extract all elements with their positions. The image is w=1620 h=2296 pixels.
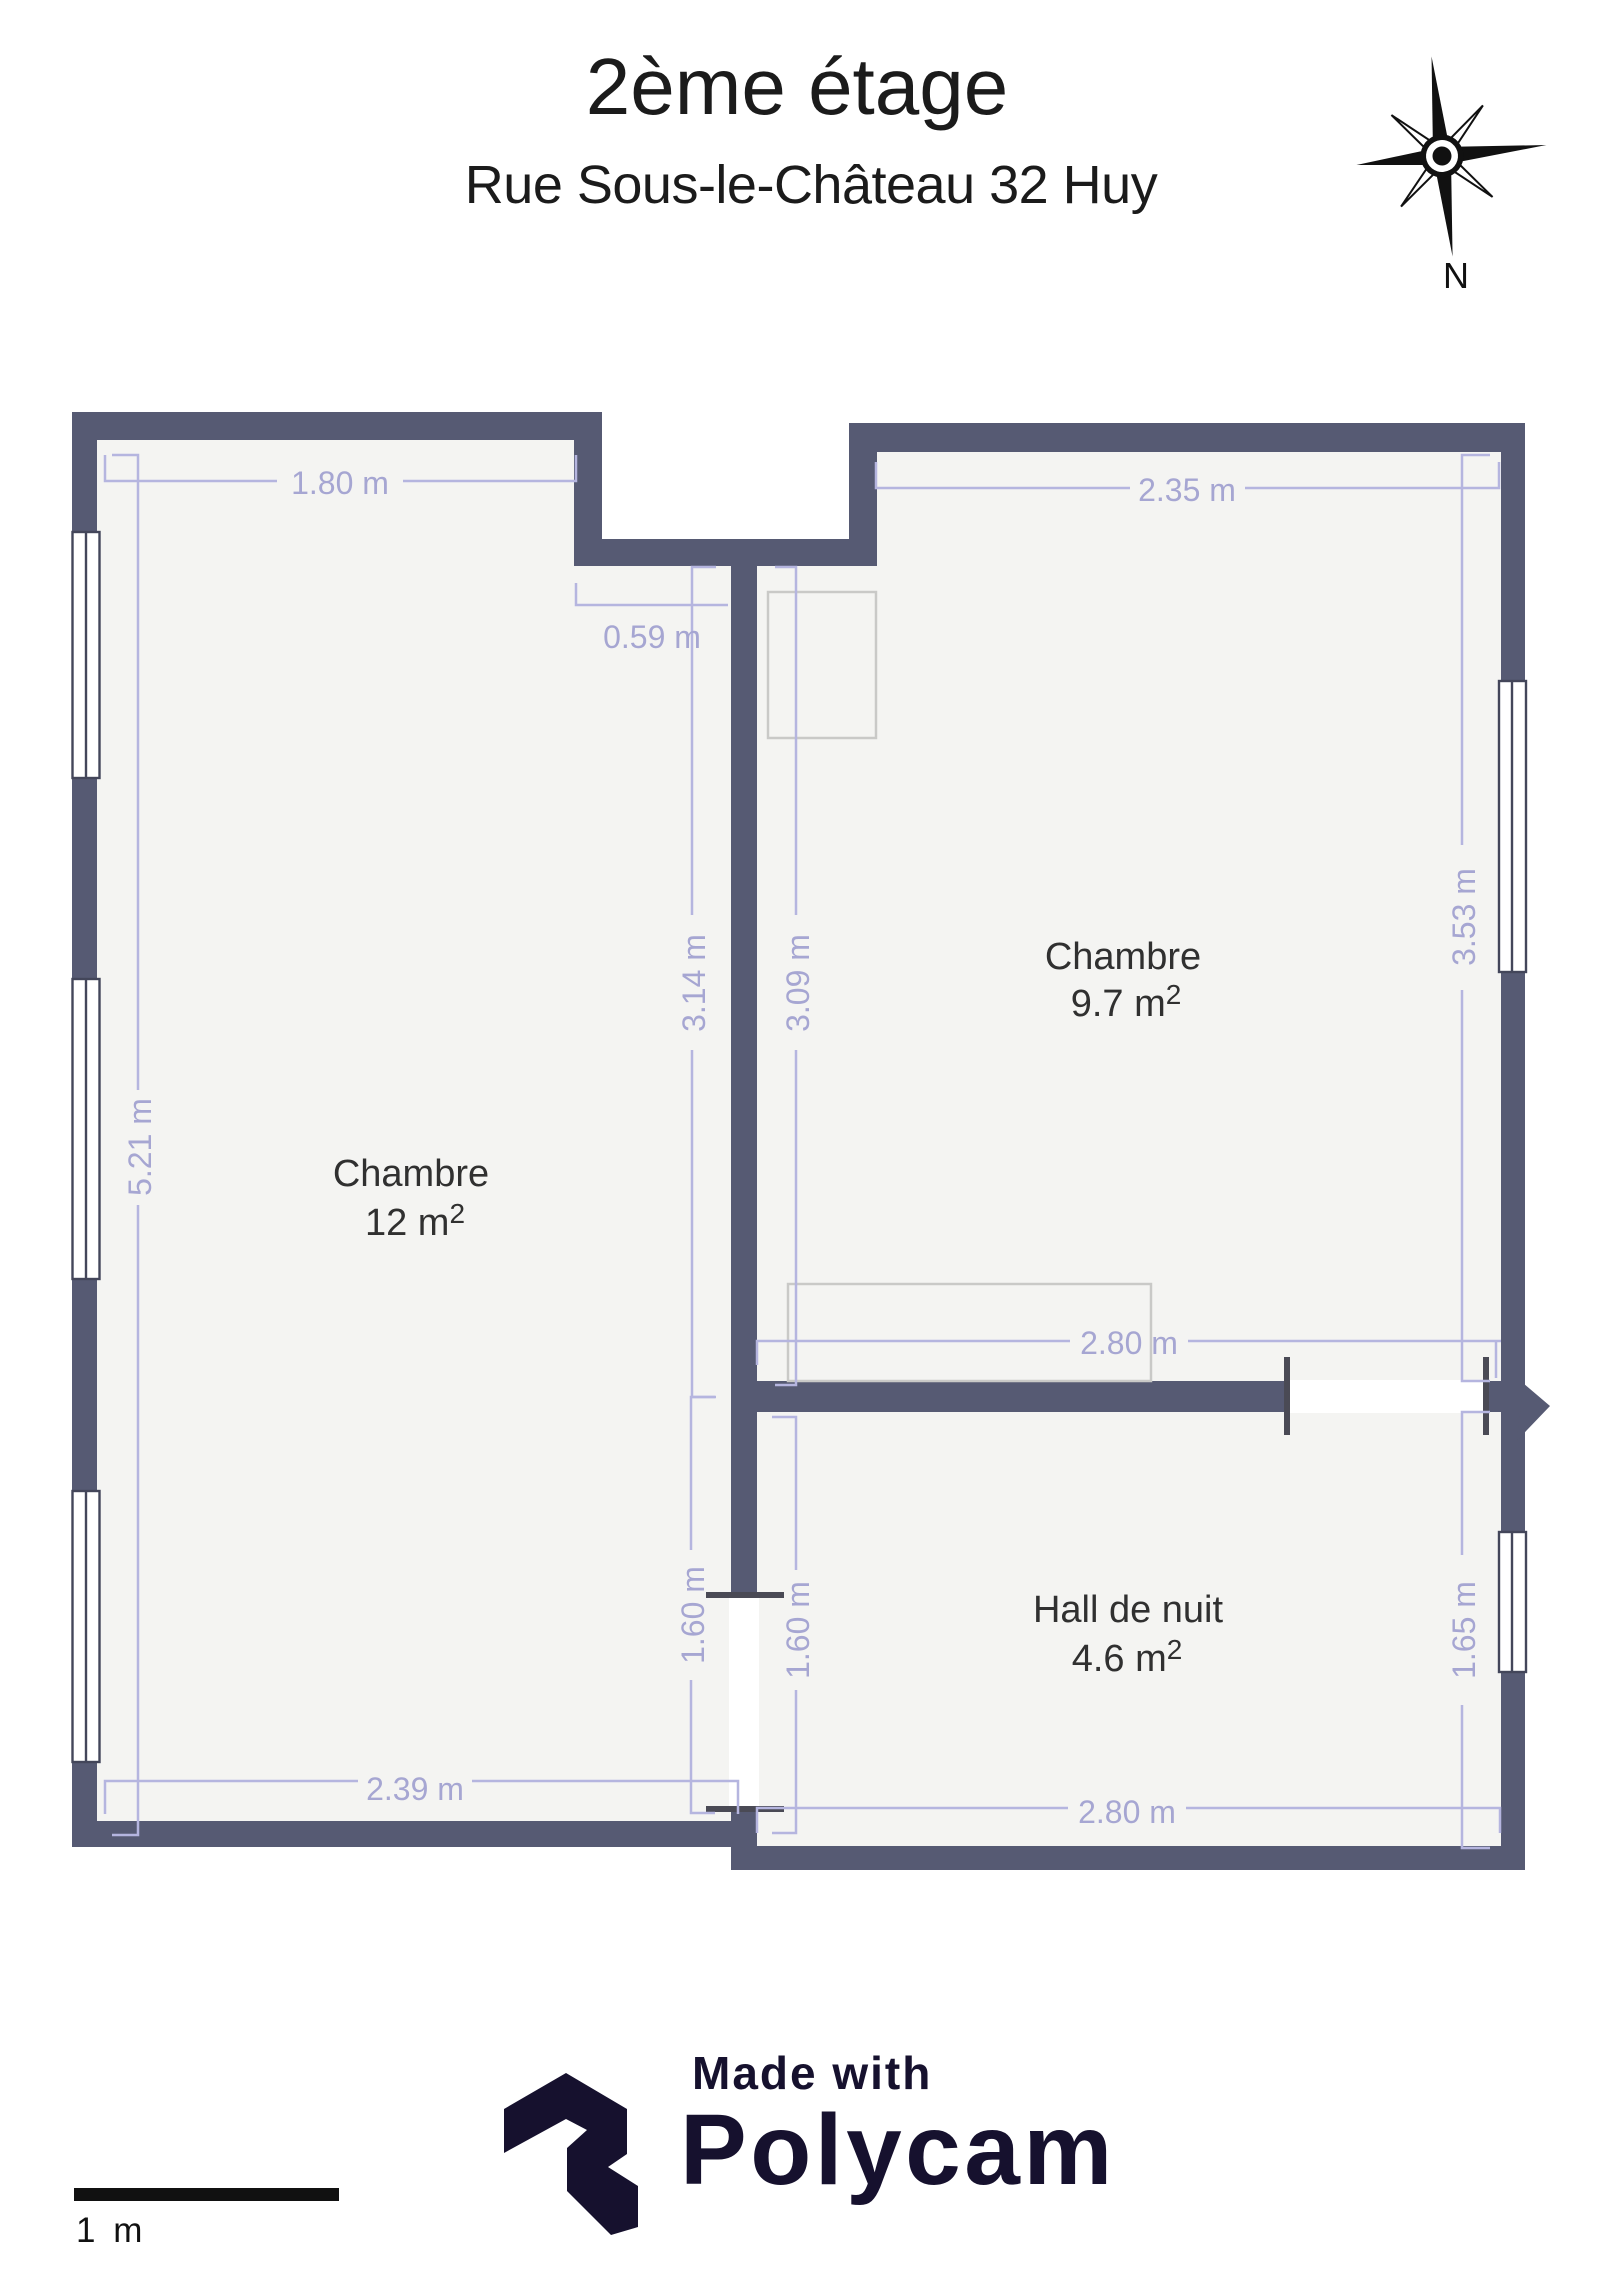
svg-text:9.7 m2: 9.7 m2	[1071, 979, 1182, 1025]
svg-text:3.14 m: 3.14 m	[676, 934, 712, 1032]
svg-text:Hall de nuit: Hall de nuit	[1033, 1589, 1224, 1631]
svg-text:Polycam: Polycam	[680, 2094, 1116, 2206]
svg-text:1.60 m: 1.60 m	[675, 1566, 711, 1664]
svg-text:Made with: Made with	[692, 2047, 932, 2099]
svg-text:2.35 m: 2.35 m	[1138, 472, 1236, 508]
svg-text:Chambre: Chambre	[1045, 936, 1201, 978]
svg-text:2ème étage: 2ème étage	[586, 42, 1009, 131]
svg-text:N: N	[1443, 255, 1469, 296]
svg-text:0.59 m: 0.59 m	[603, 619, 701, 655]
svg-text:1.60 m: 1.60 m	[780, 1581, 816, 1679]
svg-text:2.39 m: 2.39 m	[366, 1771, 464, 1807]
svg-text:3.09 m: 3.09 m	[780, 934, 816, 1032]
svg-text:1 m: 1 m	[76, 2211, 146, 2250]
svg-text:1.80 m: 1.80 m	[291, 465, 389, 501]
svg-text:3.53 m: 3.53 m	[1446, 868, 1482, 966]
svg-text:2.80 m: 2.80 m	[1080, 1325, 1178, 1361]
svg-text:5.21 m: 5.21 m	[122, 1098, 158, 1196]
svg-text:2.80 m: 2.80 m	[1078, 1794, 1176, 1830]
svg-text:Rue Sous-le-Château 32 Huy: Rue Sous-le-Château 32 Huy	[465, 155, 1158, 215]
svg-text:4.6 m2: 4.6 m2	[1072, 1634, 1183, 1680]
svg-text:Chambre: Chambre	[333, 1153, 489, 1195]
svg-text:1.65 m: 1.65 m	[1446, 1581, 1482, 1679]
